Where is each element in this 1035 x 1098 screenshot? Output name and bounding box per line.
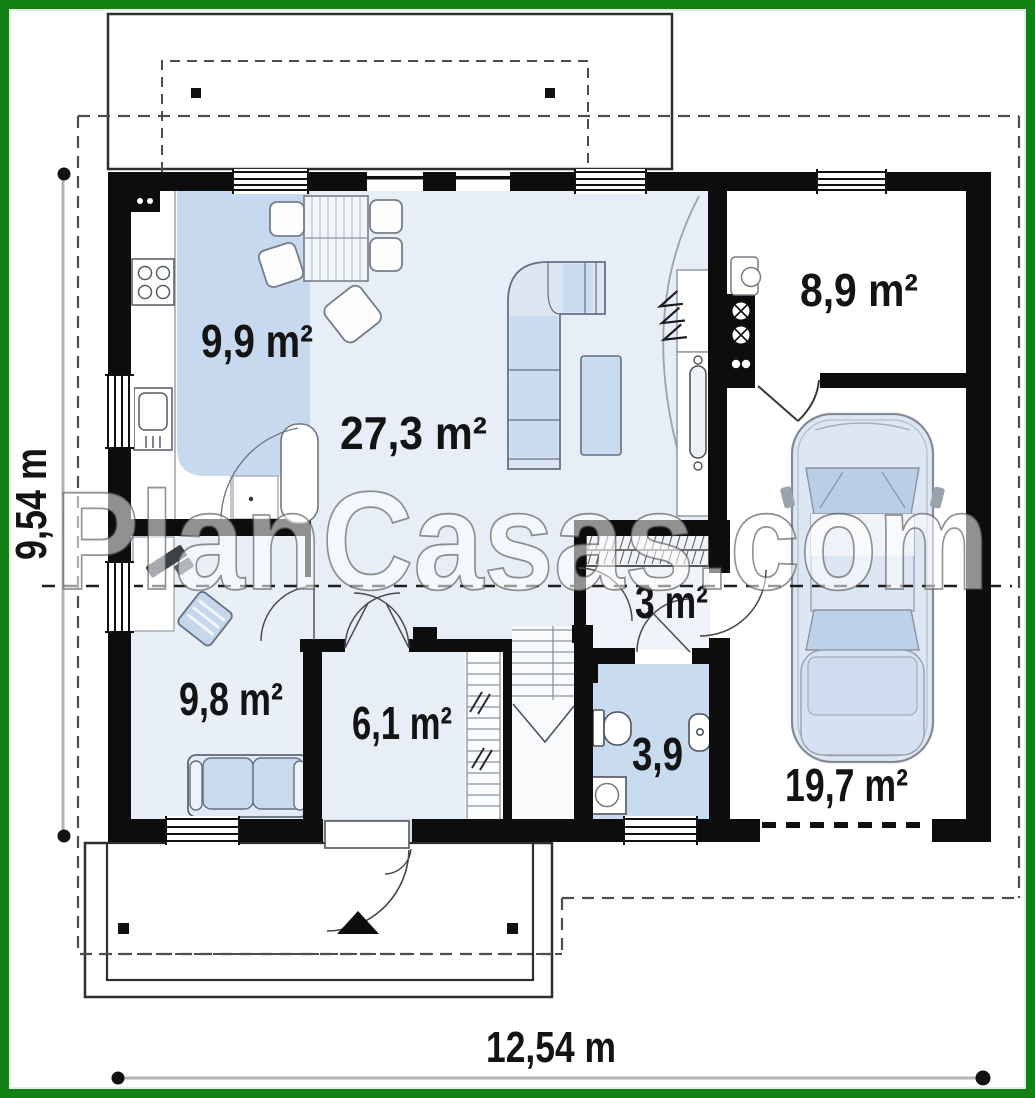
- svg-text:8,9 m²: 8,9 m²: [800, 264, 918, 316]
- svg-text:3,9: 3,9: [632, 728, 683, 780]
- svg-text:27,3 m²: 27,3 m²: [340, 407, 487, 459]
- svg-text:12,54 m: 12,54 m: [486, 1023, 616, 1072]
- svg-text:PlanCasas.com: PlanCasas.com: [55, 463, 990, 619]
- svg-text:19,7 m²: 19,7 m²: [785, 759, 908, 811]
- svg-text:9,9 m²: 9,9 m²: [201, 315, 313, 367]
- svg-text:9,8 m²: 9,8 m²: [179, 673, 283, 725]
- svg-text:6,1 m²: 6,1 m²: [352, 697, 452, 749]
- svg-text:9,54 m: 9,54 m: [7, 448, 56, 560]
